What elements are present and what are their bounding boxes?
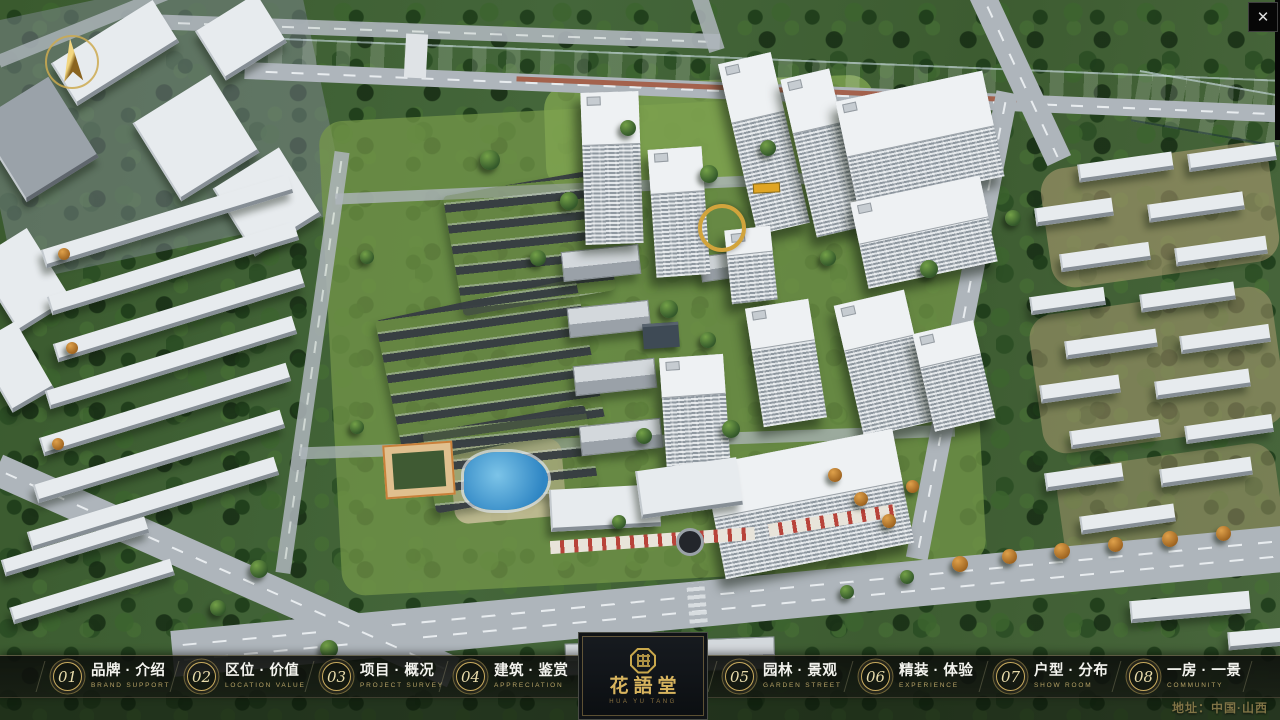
autumn-tree — [952, 556, 968, 572]
tree — [700, 332, 716, 348]
shuttle-bus — [753, 182, 780, 193]
tree — [210, 600, 226, 616]
item-number: 04 — [461, 668, 480, 686]
tree — [700, 165, 718, 183]
autumn-tree — [1162, 531, 1178, 547]
tree — [900, 570, 914, 584]
item-label-en: GARDEN STREET — [763, 682, 842, 689]
number-badge-icon: 06 — [861, 662, 890, 691]
item-label-zh: 户型 · 分布 — [1034, 664, 1108, 680]
autumn-tree — [1054, 543, 1070, 559]
project-logo-panel[interactable]: 花語堂 HUA YU TANG — [578, 632, 708, 720]
autumn-tree — [828, 468, 842, 482]
compass — [40, 30, 104, 94]
tree — [660, 300, 678, 318]
number-badge-icon: 07 — [996, 662, 1025, 691]
number-badge-icon: 03 — [322, 662, 351, 691]
entry-plaza-circle — [676, 528, 704, 556]
item-label-zh: 建筑 · 鉴赏 — [494, 664, 568, 680]
close-icon: ✕ — [1257, 10, 1270, 25]
tree — [530, 250, 546, 266]
project-title: 花語堂 — [604, 677, 681, 696]
item-label-zh: 区位 · 价值 — [225, 664, 306, 680]
tree — [612, 515, 626, 529]
item-label-en: SHOW ROOM — [1034, 682, 1108, 689]
tree — [920, 260, 938, 278]
autumn-tree — [854, 492, 868, 506]
entrance-pavilion — [642, 322, 680, 349]
tree — [636, 428, 652, 444]
autumn-tree — [1216, 526, 1231, 541]
item-label-en: COMMUNITY — [1167, 682, 1241, 689]
tree — [820, 250, 836, 266]
autumn-tree — [882, 514, 896, 528]
tower-building — [648, 146, 711, 277]
tree — [1005, 210, 1021, 226]
green-roof — [392, 450, 446, 490]
nav-item-views[interactable]: 08 一房 · 一景COMMUNITY — [1116, 656, 1247, 697]
bar-spacer — [1247, 656, 1280, 697]
bar-spacer — [0, 656, 40, 697]
item-label-en: LOCATION VALUE — [225, 682, 306, 689]
tower-building — [580, 91, 643, 245]
item-number: 03 — [327, 668, 346, 686]
seal-emblem-icon — [630, 648, 656, 674]
close-button[interactable]: ✕ — [1248, 2, 1278, 32]
item-label-zh: 品牌 · 介绍 — [91, 664, 170, 680]
nav-item-floorplan[interactable]: 07 户型 · 分布SHOW ROOM — [983, 656, 1116, 697]
nav-item-project[interactable]: 03 项目 · 概况PROJECT SURVEY — [309, 656, 443, 697]
crosswalk — [686, 582, 707, 623]
item-number: 07 — [1001, 668, 1020, 686]
autumn-tree — [906, 480, 919, 493]
site-render-viewport[interactable] — [0, 0, 1280, 720]
number-badge-icon: 02 — [187, 662, 216, 691]
item-label-zh: 一房 · 一景 — [1167, 664, 1241, 680]
nav-item-architecture[interactable]: 04 建筑 · 鉴赏APPRECIATION — [443, 656, 575, 697]
tree — [250, 560, 268, 578]
autumn-tree — [66, 342, 78, 354]
tree — [722, 420, 740, 438]
number-badge-icon: 08 — [1129, 662, 1158, 691]
tree — [840, 585, 854, 599]
number-badge-icon: 04 — [456, 662, 485, 691]
nav-item-interior[interactable]: 06 精装 · 体验EXPERIENCE — [848, 656, 983, 697]
number-badge-icon: 01 — [53, 662, 82, 691]
tree — [350, 420, 364, 434]
project-address: 地址：中国·山西 — [1172, 699, 1268, 716]
item-number: 05 — [730, 668, 749, 686]
autumn-tree — [1108, 537, 1123, 552]
autumn-tree — [1002, 549, 1017, 564]
number-badge-icon: 05 — [725, 662, 754, 691]
tree — [760, 140, 776, 156]
item-number: 01 — [58, 668, 77, 686]
nav-item-brand[interactable]: 01 品牌 · 介绍BRAND SUPPORT — [40, 656, 174, 697]
app-window: ✕ 01 品牌 · 介绍BRAND SUPPORT 02 区位 · 价值LOCA… — [0, 0, 1280, 720]
tree — [560, 192, 578, 210]
autumn-tree — [58, 248, 70, 260]
item-label-zh: 精装 · 体验 — [899, 664, 973, 680]
autumn-tree — [52, 438, 64, 450]
seal-pattern — [637, 654, 650, 667]
nav-item-location[interactable]: 02 区位 · 价值LOCATION VALUE — [174, 656, 309, 697]
item-number: 06 — [866, 668, 885, 686]
tree — [360, 250, 374, 264]
amenity-building — [382, 441, 456, 500]
item-label-en: EXPERIENCE — [899, 682, 973, 689]
tree — [480, 150, 500, 170]
tower-building — [659, 354, 731, 472]
item-label-en: PROJECT SURVEY — [360, 682, 444, 689]
item-number: 08 — [1134, 668, 1153, 686]
item-label-en: APPRECIATION — [494, 682, 568, 689]
bridge — [404, 33, 428, 78]
item-label-en: BRAND SUPPORT — [91, 682, 170, 689]
seal-inner — [632, 650, 654, 672]
tree — [620, 120, 636, 136]
item-label-zh: 项目 · 概况 — [360, 664, 444, 680]
item-number: 02 — [192, 668, 211, 686]
item-label-zh: 园林 · 景观 — [763, 664, 842, 680]
nav-item-garden[interactable]: 05 园林 · 景观GARDEN STREET — [712, 656, 848, 697]
gold-ring-landscape — [698, 204, 746, 252]
project-subtitle: HUA YU TANG — [609, 699, 677, 705]
